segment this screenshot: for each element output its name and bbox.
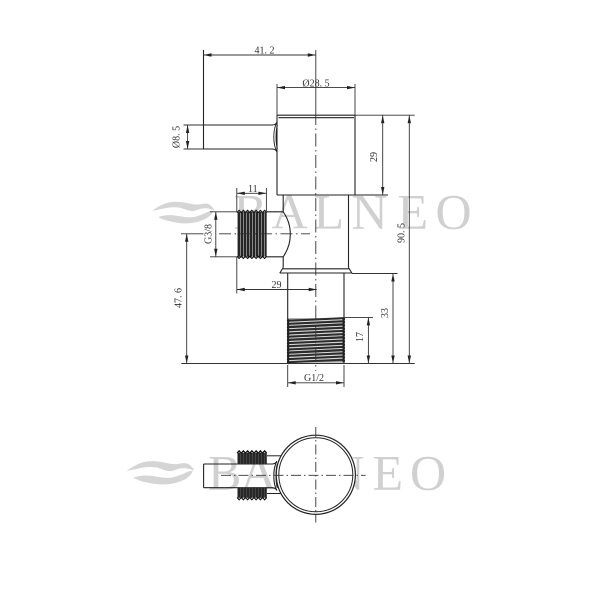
svg-text:29: 29 [272,280,282,291]
svg-text:41. 2: 41. 2 [255,46,275,57]
svg-text:29: 29 [369,152,380,162]
svg-text:11: 11 [248,184,258,195]
svg-text:Ø8. 5: Ø8. 5 [172,126,183,148]
svg-text:O: O [436,184,472,240]
svg-text:17: 17 [355,332,366,342]
svg-text:B: B [208,445,241,501]
svg-text:G1/2: G1/2 [304,373,324,384]
svg-text:E: E [373,445,404,501]
svg-text:90. 5: 90. 5 [397,223,408,243]
svg-text:O: O [410,445,446,501]
svg-text:L: L [314,184,345,240]
svg-text:Ø28. 5: Ø28. 5 [302,79,329,90]
svg-text:G3/8: G3/8 [204,224,215,244]
svg-text:33: 33 [380,308,391,318]
svg-text:47. 6: 47. 6 [174,288,185,308]
